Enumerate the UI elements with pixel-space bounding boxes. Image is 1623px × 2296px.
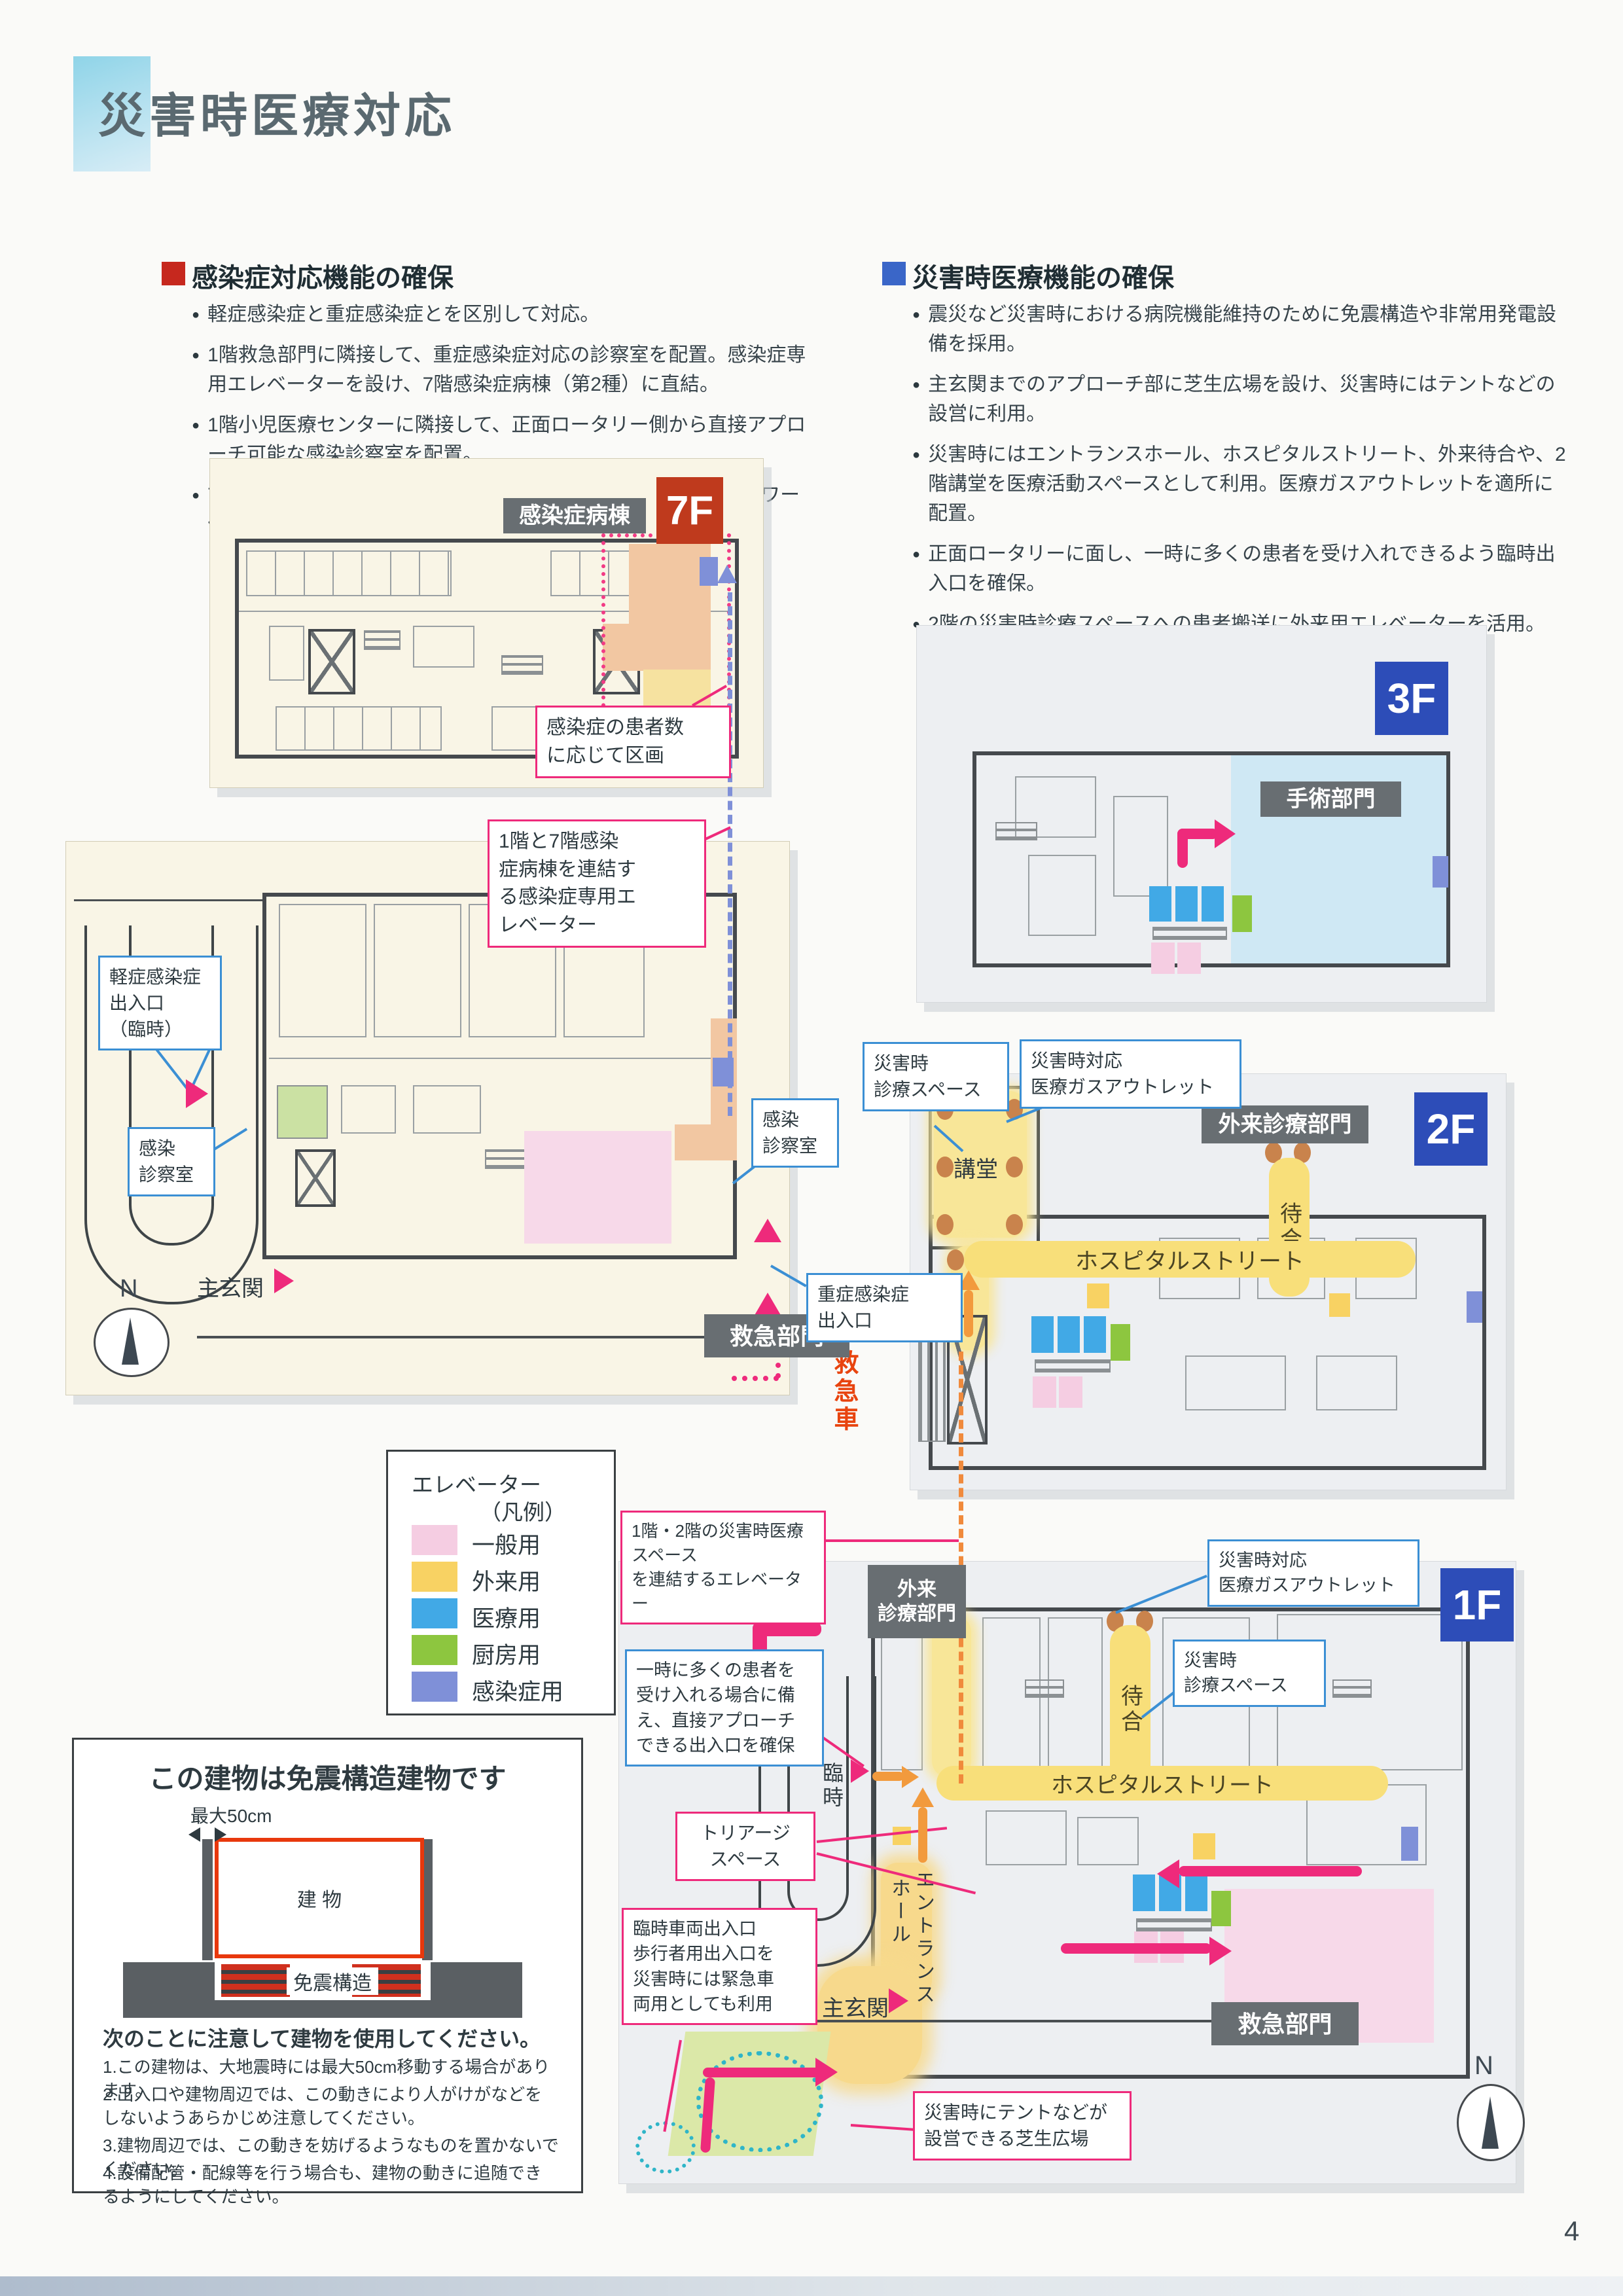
legend-title: エレベーター	[412, 1467, 541, 1499]
corridor-line	[269, 1058, 724, 1059]
infection-elevator-callout: 1階と7階感染 症病棟を連結す る感染症専用エ レベーター	[488, 819, 706, 948]
transfer-route-right	[1061, 1943, 1211, 1954]
outpatient-elevator	[1329, 1293, 1350, 1317]
stairs	[995, 822, 1037, 840]
infection-elevator	[1433, 856, 1448, 888]
bullet-item: 災害時にはエントランスホール、ホスピタルストリート、外来待合や、2階講堂を医療活…	[912, 440, 1567, 528]
temporary-entrance-arrow	[851, 1759, 869, 1783]
footer-bar	[0, 2276, 1623, 2296]
room-outline	[279, 904, 366, 1037]
road-line	[197, 1336, 779, 1338]
severe-entrance-arrow	[754, 1219, 781, 1242]
medical-elevator	[1058, 1316, 1080, 1353]
room-outline	[374, 904, 461, 1037]
up-route-arrow-head	[912, 1787, 934, 1807]
isolation-label: 免震構造	[287, 1967, 378, 1995]
callout-connector	[705, 826, 731, 840]
ambulance-label: 救急車	[826, 1350, 862, 1434]
up-route-arrow	[964, 1290, 973, 1337]
seismic-building-label: 建 物	[297, 1884, 342, 1912]
ambulance-route	[732, 1376, 779, 1381]
room-outline	[413, 1085, 481, 1134]
main-entrance-label: 主玄関	[822, 1990, 889, 2022]
room-outline	[246, 550, 452, 596]
corridor-space	[932, 1615, 971, 1778]
left-arrow-icon	[188, 1827, 200, 1842]
stairs	[1025, 1679, 1064, 1698]
transfer-route-left-head	[1157, 1859, 1179, 1888]
hospital-street-label: ホスピタルストリート	[1051, 1767, 1274, 1799]
room-outline	[1028, 855, 1096, 936]
bullet-item: 正面ロータリーに面し、一時に多くの患者を受け入れできるよう臨時出入口を確保。	[912, 539, 1567, 598]
hospital-street-label: ホスピタルストリート	[1075, 1243, 1304, 1276]
disaster-heading: 災害時医療機能の確保	[912, 257, 1174, 295]
surgery-badge-label: 手術部門	[1287, 785, 1376, 814]
transfer-route-left	[1179, 1866, 1362, 1876]
street-entry-arrow	[872, 1772, 904, 1781]
main-entrance-arrow	[274, 1268, 294, 1293]
gas-outlet-callout-2f: 災害時対応 医療ガスアウトレット	[1020, 1039, 1241, 1109]
right-arrow-icon	[215, 1827, 226, 1842]
up-route-arrow	[918, 1807, 927, 1863]
street-entry-arrow-head	[902, 1766, 919, 1788]
mild-entrance-callout: 軽症感染症 出入口 （臨時）	[98, 956, 222, 1050]
entrance-hall-label-2: エントランス	[908, 1869, 937, 2007]
seismic-building: 建 物	[215, 1838, 424, 1958]
outpatient-elevator	[893, 1827, 911, 1845]
floor-badge-3f: 3F	[1375, 662, 1448, 735]
floor-badge-label: 7F	[666, 488, 713, 534]
disaster-space-callout-1f: 災害時 診療スペース	[1173, 1640, 1326, 1707]
isolation-label-text: 免震構造	[293, 1967, 372, 1996]
severe-entrance-arrow	[754, 1293, 781, 1316]
disaster-bullets: 震災など災害時における病院機能維持のために免震構造や非常用発電設備を採用。 主玄…	[912, 300, 1567, 650]
room-outline	[1077, 1817, 1139, 1865]
compass-n-label: N	[1474, 2051, 1493, 2081]
general-elevator	[1177, 942, 1201, 974]
infection-heading-square	[162, 262, 185, 285]
medical-elevator	[1031, 1316, 1054, 1353]
room-outline	[986, 1810, 1067, 1865]
hospital-street-band: ホスピタルストリート	[964, 1241, 1416, 1278]
room-outline	[276, 706, 442, 751]
elevator-shaft	[308, 629, 355, 694]
legend-swatch-kitchen	[412, 1635, 457, 1665]
gas-outlet-dot	[936, 1157, 954, 1177]
infection-elevator	[1467, 1291, 1482, 1323]
floor-badge-label: 1F	[1453, 1581, 1502, 1629]
outpatient-elevator	[1193, 1833, 1215, 1859]
gas-outlet-dot	[936, 1214, 954, 1235]
temporary-label: 臨時	[817, 1762, 847, 1810]
isolator-pad	[221, 1964, 290, 1997]
site-boundary	[74, 899, 264, 901]
general-elevator	[1059, 1376, 1082, 1408]
elevator-legend: エレベーター （凡例） 一般用 外来用 医療用 厨房用 感染症用	[386, 1450, 616, 1715]
surgery-badge: 手術部門	[1260, 781, 1401, 817]
bullet-item: 主玄関までのアプローチ部に芝生広場を設け、災害時にはテントなどの設営に利用。	[912, 370, 1567, 429]
gas-outlet-dot	[1006, 1214, 1023, 1235]
infection-elevator-link-line	[728, 592, 732, 1116]
kitchen-elevator	[1232, 895, 1252, 932]
bullet-item: 軽症感染症と重症感染症とを区別して対応。	[192, 300, 813, 329]
route-arrow	[1177, 829, 1218, 839]
room-outline	[881, 1617, 923, 1770]
legend-label: 医療用	[472, 1600, 541, 1634]
floorplan-2f: 2F 外来診療部門 講堂 待合 ホスピタルストリート	[910, 1073, 1507, 1490]
floor-badge-label: 2F	[1427, 1105, 1476, 1153]
gas-outlet-callout-1f: 災害時対応 医療ガスアウトレット	[1207, 1539, 1419, 1607]
outpatient-badge-label: 外来診療部門	[1219, 1111, 1352, 1139]
exam-room-callout-right: 感染 診察室	[751, 1098, 839, 1168]
stairs	[1332, 1679, 1372, 1698]
tent-area-ellipse	[696, 2051, 823, 2152]
outpatient-badge-line2: 診療部門	[878, 1602, 956, 1626]
seismic-note: 4.設備配管・配線等を行う場合も、建物の動きに追随できるようにしてください。	[103, 2161, 554, 2209]
legend-label: 外来用	[472, 1564, 541, 1597]
compass-n-label: N	[120, 1275, 137, 1303]
seismic-box: この建物は免震構造建物です 最大50cm 建 物 免震構造 次のことに注意して建…	[72, 1738, 583, 2193]
main-entrance-label: 主玄関	[197, 1270, 264, 1302]
legend-label: 一般用	[472, 1527, 541, 1560]
kitchen-elevator	[1111, 1324, 1130, 1361]
stairs	[501, 655, 543, 675]
stairs	[485, 1149, 529, 1169]
connect-elevator-callout: 1階・2階の災害時医療スペース を連結するエレベーター	[620, 1511, 826, 1624]
room-outline	[269, 626, 304, 681]
medical-elevator	[1185, 1874, 1207, 1911]
disaster-space-callout-2f: 災害時 診療スペース	[863, 1042, 1009, 1111]
outpatient-elevator	[1087, 1283, 1109, 1308]
callout-connector	[813, 1539, 959, 1542]
legend-label: 感染症用	[472, 1674, 563, 1707]
page-number: 4	[1564, 2215, 1579, 2247]
disaster-heading-square	[882, 262, 906, 285]
legend-subtitle: （凡例）	[480, 1495, 566, 1526]
lawn-plaza-callout: 災害時にテントなどが 設営できる芝生広場	[913, 2091, 1132, 2161]
stairs	[1152, 927, 1227, 940]
mild-entrance-arrow	[186, 1079, 208, 1108]
room-outline	[1113, 796, 1168, 897]
medical-elevator	[1175, 886, 1198, 922]
severe-entrance-callout: 重症感染症 出入口	[806, 1273, 963, 1342]
legend-swatch-outpatient	[412, 1562, 457, 1592]
hospital-street-band: ホスピタルストリート	[936, 1766, 1388, 1801]
room-outline	[341, 1085, 396, 1134]
ward-badge-label: 感染症病棟	[519, 502, 630, 530]
floorplan-3f: 3F 手術部門	[916, 625, 1487, 1003]
page-title: 災害時医療対応	[98, 77, 455, 146]
seismic-title: この建物は免震構造建物です	[74, 1757, 581, 1797]
direct-entrance-callout: 一時に多くの患者を 受け入れる場合に備 え、直接アプローチ できる出入口を確保	[625, 1649, 824, 1767]
infection-elevator	[1401, 1827, 1418, 1861]
kitchen-elevator	[1211, 1891, 1231, 1926]
up-arrow-icon	[717, 565, 737, 583]
seismic-note-title: 次のことに注意して建物を使用してください。	[103, 2022, 541, 2053]
exam-room-callout-left: 感染 診察室	[128, 1127, 215, 1196]
temp-vehicle-callout: 臨時車両出入口 歩行者用出入口を 災害時には緊急車 両用としても利用	[622, 1908, 817, 2025]
er-badge-label: 救急部門	[1238, 2009, 1332, 2039]
ward-badge: 感染症病棟	[503, 498, 646, 533]
elevator-shaft	[295, 1149, 336, 1207]
room-outline	[1316, 1355, 1397, 1410]
compass-icon	[1457, 2084, 1525, 2161]
seismic-max-label: 最大50cm	[190, 1802, 272, 1828]
waiting-label: 待合	[1115, 1684, 1147, 1735]
legend-swatch-general	[412, 1525, 457, 1555]
outpatient-badge-line1: 外来	[897, 1577, 936, 1602]
room-outline	[413, 626, 474, 668]
legend-swatch-medical	[412, 1598, 457, 1628]
infection-heading: 感染症対応機能の確保	[192, 257, 454, 295]
stairs	[1136, 1918, 1212, 1931]
bullet-item: 震災など災害時における病院機能維持のために免震構造や非常用発電設備を採用。	[912, 300, 1567, 359]
er-badge: 救急部門	[1211, 2002, 1359, 2045]
building-slide-bar	[202, 1839, 213, 1960]
main-entrance-arrow	[889, 1988, 908, 2013]
infection-exam-room-zone	[277, 1085, 328, 1139]
room-outline	[1185, 1355, 1286, 1410]
gas-outlet-dot	[947, 1249, 964, 1270]
bullet-item: 1階救急部門に隣接して、重症感染症対応の診察室を配置。感染症専用エレベーターを設…	[192, 340, 813, 399]
hall-label: 講堂	[954, 1151, 998, 1183]
floor-badge-label: 3F	[1387, 674, 1436, 723]
route-arrow-head	[1215, 819, 1236, 848]
floor-badge-7f: 7F	[656, 477, 723, 544]
gas-outlet-dot	[1006, 1157, 1023, 1177]
transfer-route-right-head	[1209, 1937, 1232, 1965]
general-elevator-zone	[524, 1131, 671, 1244]
stairs	[364, 630, 401, 650]
floor-badge-1f: 1F	[1440, 1568, 1514, 1641]
seismic-note: 2.出入口や建物周辺では、この動きにより人がけがなどをしないようあらかじめ注意し…	[103, 2083, 554, 2130]
ward-partition-callout: 感染症の患者数 に応じて区画	[535, 706, 731, 778]
brochure-page: 災害時医療対応 感染症対応機能の確保 軽症感染症と重症感染症とを区別して対応。 …	[0, 0, 1623, 2296]
approach-route	[703, 2068, 821, 2077]
foundation-base	[123, 2000, 522, 2018]
compass-icon	[94, 1308, 169, 1377]
floor-badge-2f: 2F	[1414, 1092, 1488, 1166]
general-elevator	[1151, 942, 1175, 974]
medical-elevator	[1084, 1316, 1106, 1353]
general-elevator	[1033, 1376, 1056, 1408]
outpatient-badge: 外来診療部門	[1202, 1105, 1368, 1143]
legend-swatch-infection	[412, 1672, 457, 1702]
triage-callout: トリアージ スペース	[675, 1812, 815, 1881]
outpatient-badge: 外来 診療部門	[868, 1565, 966, 1638]
medical-elevator	[1149, 886, 1171, 922]
severe-infection-zone	[675, 1124, 737, 1160]
approach-route-head	[815, 2058, 838, 2087]
medical-elevator	[1202, 886, 1224, 922]
legend-label: 厨房用	[472, 1637, 541, 1670]
medical-elevator	[1133, 1874, 1155, 1911]
stairs	[1035, 1359, 1111, 1372]
